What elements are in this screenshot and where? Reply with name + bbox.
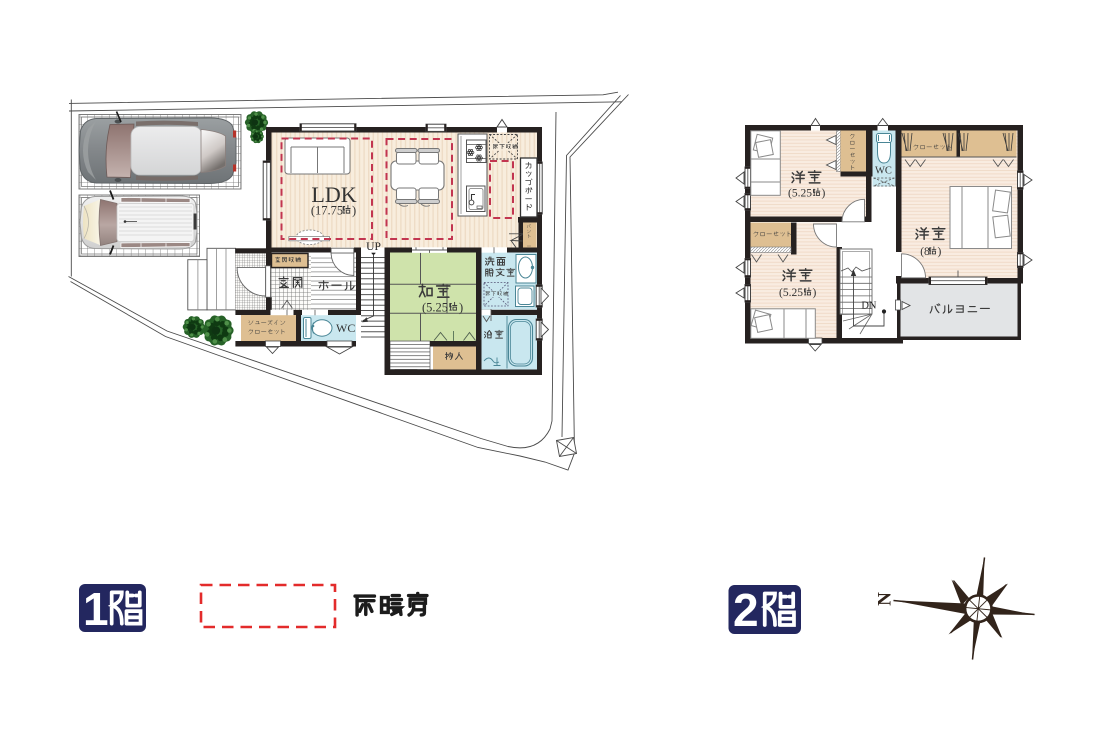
svg-text:(5.25: (5.25 — [422, 301, 448, 315]
svg-text:(17.75: (17.75 — [311, 204, 343, 218]
svg-text:UP: UP — [366, 241, 381, 253]
svg-text:): ) — [459, 301, 463, 315]
svg-text:): ) — [822, 188, 826, 200]
svg-text:(8: (8 — [920, 246, 930, 258]
svg-text:): ) — [813, 287, 817, 299]
svg-text:WC: WC — [336, 321, 355, 335]
svg-text:N: N — [875, 592, 896, 606]
svg-text:(5.25: (5.25 — [788, 188, 812, 200]
svg-text:WC: WC — [875, 166, 892, 177]
svg-text:2: 2 — [733, 584, 759, 636]
svg-text:): ) — [938, 246, 942, 258]
svg-text:1: 1 — [83, 583, 109, 635]
svg-text:DN: DN — [861, 301, 877, 312]
svg-text:): ) — [352, 204, 356, 218]
svg-text:(5.25: (5.25 — [779, 287, 803, 299]
